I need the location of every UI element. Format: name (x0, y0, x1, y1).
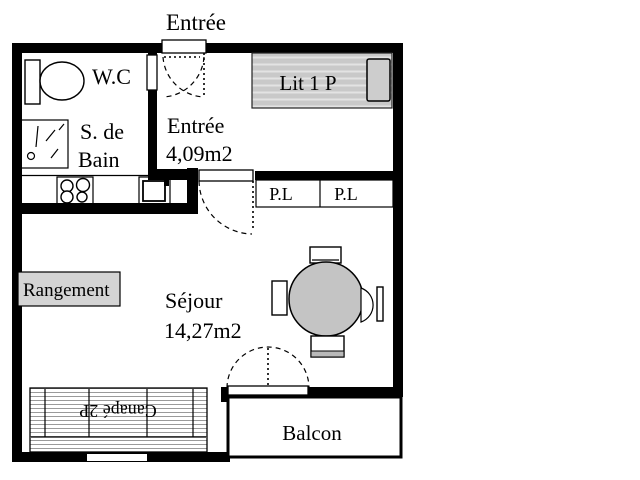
sink-icon (139, 177, 170, 204)
window-bottom (87, 454, 147, 461)
chair-bottom-bar (311, 351, 344, 357)
closet-left-label: P.L (269, 184, 293, 204)
sofa-icon: Canapé 2P (30, 388, 207, 452)
bed-icon: Lit 1 P (252, 53, 392, 108)
living-room-label: Séjour (165, 288, 223, 313)
living-room-area: 14,27m2 (164, 318, 242, 343)
living-room-door-leaf (199, 170, 253, 181)
wc-label: W.C (92, 64, 131, 89)
floor-plan-page: Balcon (0, 0, 640, 480)
bathroom-door-leaf (147, 55, 157, 90)
toilet-tank (25, 60, 40, 104)
bed-pillow (367, 59, 390, 101)
wall-left (12, 43, 22, 462)
stove-burner-2 (77, 179, 90, 192)
bathroom-label-line2: Bain (78, 147, 120, 172)
dining-table-icon (289, 262, 363, 336)
toilet-bowl (40, 62, 84, 100)
bed-label: Lit 1 P (279, 71, 336, 95)
hall-label: Entrée (167, 113, 224, 138)
stove-burner-1 (61, 180, 73, 192)
balcony-label: Balcon (282, 421, 342, 445)
stove-burner-3 (61, 191, 73, 203)
plan-title: Entrée (166, 10, 226, 35)
sink-basin (143, 181, 165, 201)
balcony: Balcon (228, 397, 401, 457)
wall-top (12, 43, 403, 53)
entrance-door-leaf (162, 40, 206, 53)
sink-tap (164, 178, 169, 186)
bathroom-door (147, 55, 157, 90)
wall-right (393, 43, 403, 397)
stove-burner-4 (77, 192, 87, 202)
storage-label: Rangement (23, 280, 110, 301)
chair-left (272, 281, 287, 315)
wall-kitchen-bottom (12, 203, 198, 214)
sofa-label: Canapé 2P (79, 401, 156, 421)
hall-area: 4,09m2 (166, 141, 233, 166)
chair-right-back (377, 287, 383, 321)
storage-box: Rangement (18, 272, 120, 306)
floor-plan: Balcon (0, 0, 640, 480)
bathroom-label-line1: S. de (80, 119, 124, 144)
wall-closet-top (255, 171, 403, 180)
balcony-door-sill (228, 386, 308, 395)
closet-right-label: P.L (334, 184, 358, 204)
